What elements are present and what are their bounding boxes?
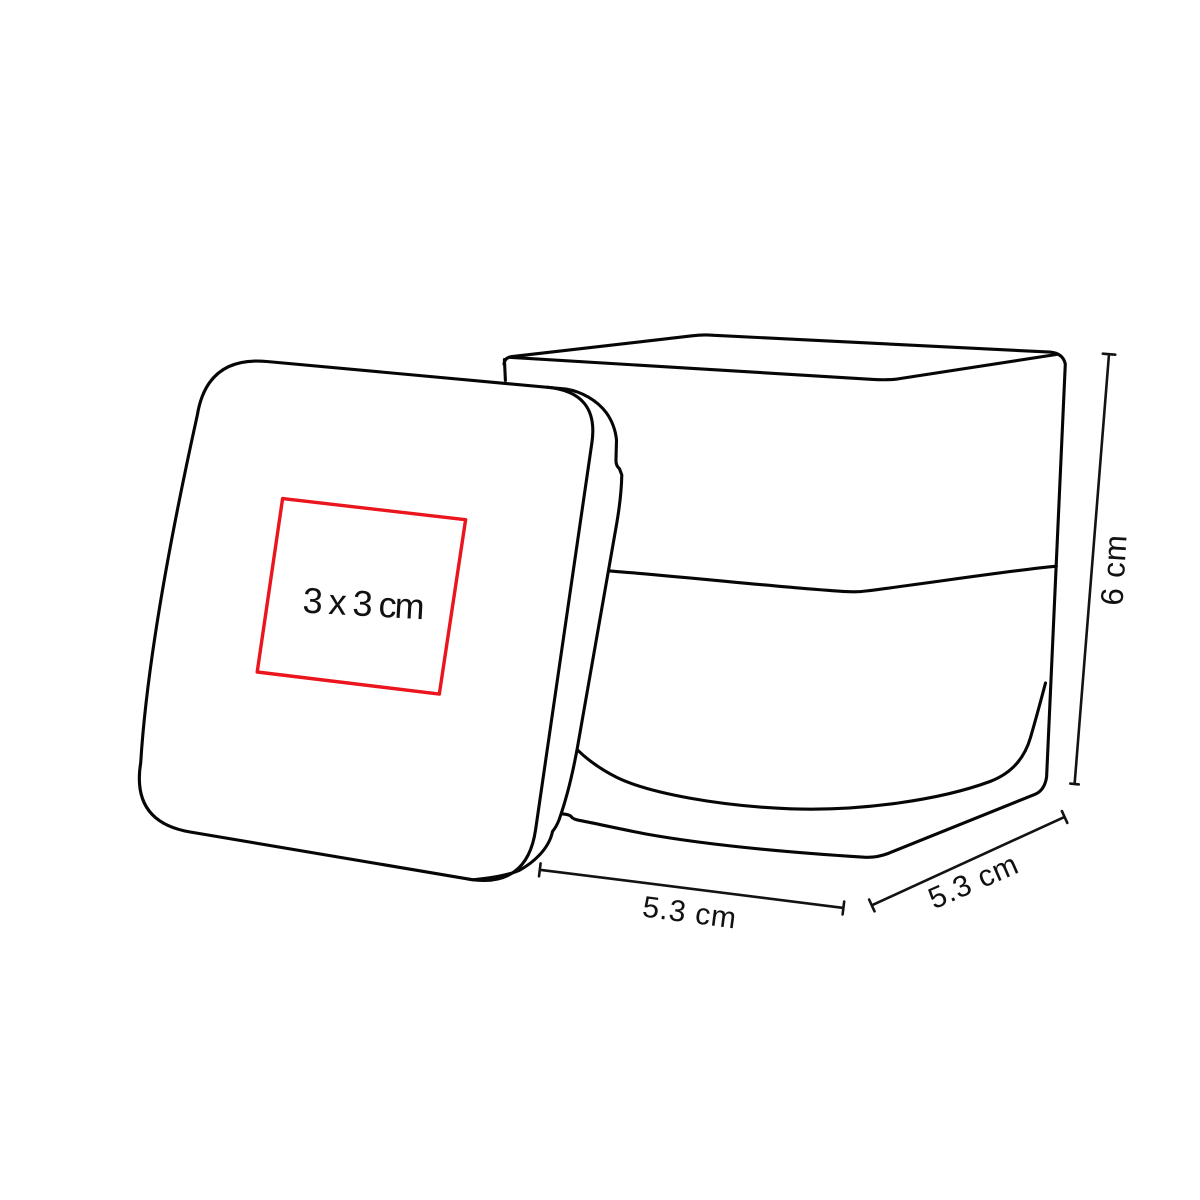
svg-text:6 cm: 6 cm <box>1093 533 1133 607</box>
svg-text:3 x 3 cm: 3 x 3 cm <box>302 580 424 628</box>
svg-text:5.3 cm: 5.3 cm <box>641 891 739 936</box>
